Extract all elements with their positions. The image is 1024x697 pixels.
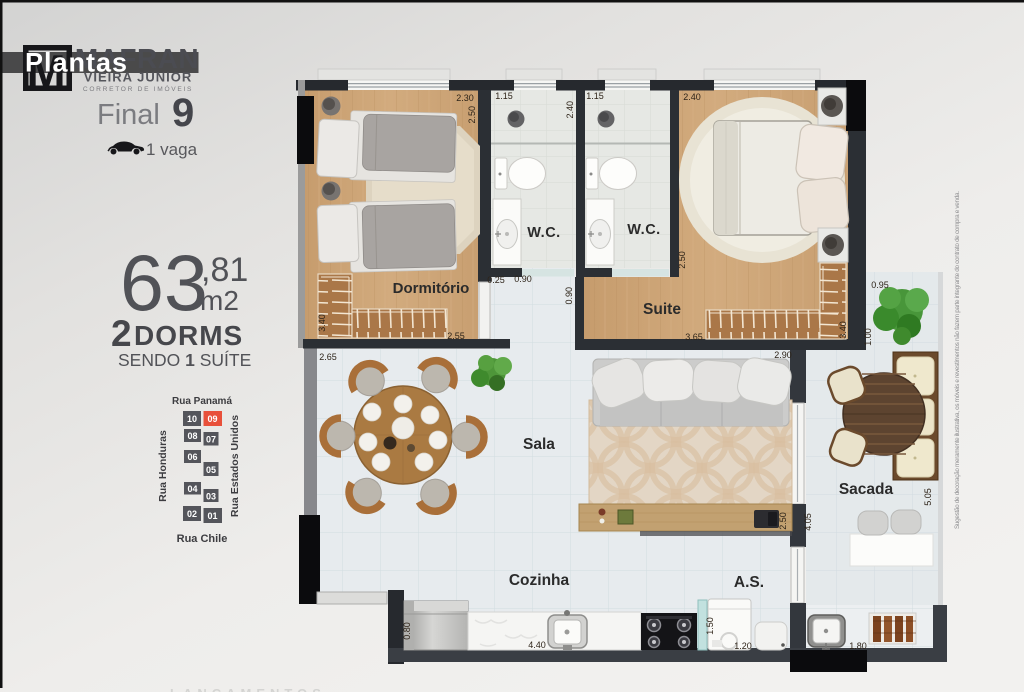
svg-text:Sala: Sala <box>523 436 555 453</box>
svg-text:Suite: Suite <box>643 301 681 318</box>
svg-text:0.90: 0.90 <box>564 287 574 305</box>
svg-text:m2: m2 <box>200 285 239 316</box>
svg-text:3.40: 3.40 <box>838 321 848 339</box>
svg-text:06: 06 <box>187 452 197 462</box>
svg-text:2.40: 2.40 <box>565 101 575 119</box>
svg-text:1.15: 1.15 <box>586 91 604 101</box>
svg-text:,81: ,81 <box>201 251 248 289</box>
svg-text:Cozinha: Cozinha <box>509 572 570 589</box>
svg-text:1.20: 1.20 <box>734 641 752 651</box>
svg-text:DORMS: DORMS <box>134 320 243 351</box>
svg-text:10: 10 <box>187 414 197 424</box>
svg-text:2.40: 2.40 <box>683 92 701 102</box>
svg-text:0.80: 0.80 <box>402 622 412 640</box>
svg-text:03: 03 <box>206 492 216 502</box>
svg-text:2.30: 2.30 <box>456 93 474 103</box>
svg-text:05: 05 <box>206 465 216 475</box>
svg-text:2.90: 2.90 <box>774 350 792 360</box>
svg-text:08: 08 <box>187 431 197 441</box>
svg-text:Final: Final <box>97 99 160 131</box>
svg-text:Rua Chile: Rua Chile <box>177 533 228 545</box>
svg-text:Rua Estados Unidos: Rua Estados Unidos <box>229 415 241 517</box>
svg-text:1.80: 1.80 <box>849 641 867 651</box>
svg-text:0.90: 0.90 <box>514 274 532 284</box>
svg-text:3.40: 3.40 <box>317 314 327 332</box>
svg-text:1.00: 1.00 <box>863 328 873 346</box>
svg-text:1 vaga: 1 vaga <box>146 140 198 159</box>
svg-text:0.95: 0.95 <box>871 280 889 290</box>
svg-text:Rua Panamá: Rua Panamá <box>172 396 232 407</box>
svg-text:0.25: 0.25 <box>487 275 505 285</box>
svg-text:04: 04 <box>187 484 197 494</box>
svg-text:07: 07 <box>206 435 216 445</box>
svg-text:W.C.: W.C. <box>527 225 560 241</box>
svg-text:2: 2 <box>111 313 132 354</box>
svg-text:09: 09 <box>207 414 217 424</box>
svg-text:2.50: 2.50 <box>677 251 687 269</box>
svg-text:01: 01 <box>207 511 217 521</box>
svg-text:Sugestão de decoração merament: Sugestão de decoração meramente ilustrat… <box>954 191 961 529</box>
svg-text:5.05: 5.05 <box>923 488 933 506</box>
svg-text:Plantas: Plantas <box>25 48 128 78</box>
svg-text:3.65: 3.65 <box>685 332 703 342</box>
svg-text:Rua Honduras: Rua Honduras <box>157 430 169 502</box>
svg-text:W.C.: W.C. <box>627 222 660 238</box>
svg-text:1.15: 1.15 <box>495 91 513 101</box>
svg-text:4.40: 4.40 <box>528 640 546 650</box>
svg-text:Sacada: Sacada <box>839 481 894 498</box>
svg-text:2.50: 2.50 <box>467 106 477 124</box>
svg-text:9: 9 <box>172 91 194 135</box>
svg-text:4.05: 4.05 <box>803 513 813 531</box>
svg-text:Dormitório: Dormitório <box>393 280 470 297</box>
svg-text:A.S.: A.S. <box>734 574 764 591</box>
svg-text:02: 02 <box>187 509 197 519</box>
svg-text:1.50: 1.50 <box>705 617 715 635</box>
svg-text:SENDO 1 SUÍTE: SENDO 1 SUÍTE <box>118 350 251 370</box>
svg-text:2.50: 2.50 <box>778 512 788 530</box>
svg-text:2.65: 2.65 <box>319 352 337 362</box>
svg-text:63: 63 <box>120 238 208 327</box>
svg-text:2.55: 2.55 <box>447 331 465 341</box>
svg-text:LANÇAMENTOS: LANÇAMENTOS <box>170 686 326 692</box>
